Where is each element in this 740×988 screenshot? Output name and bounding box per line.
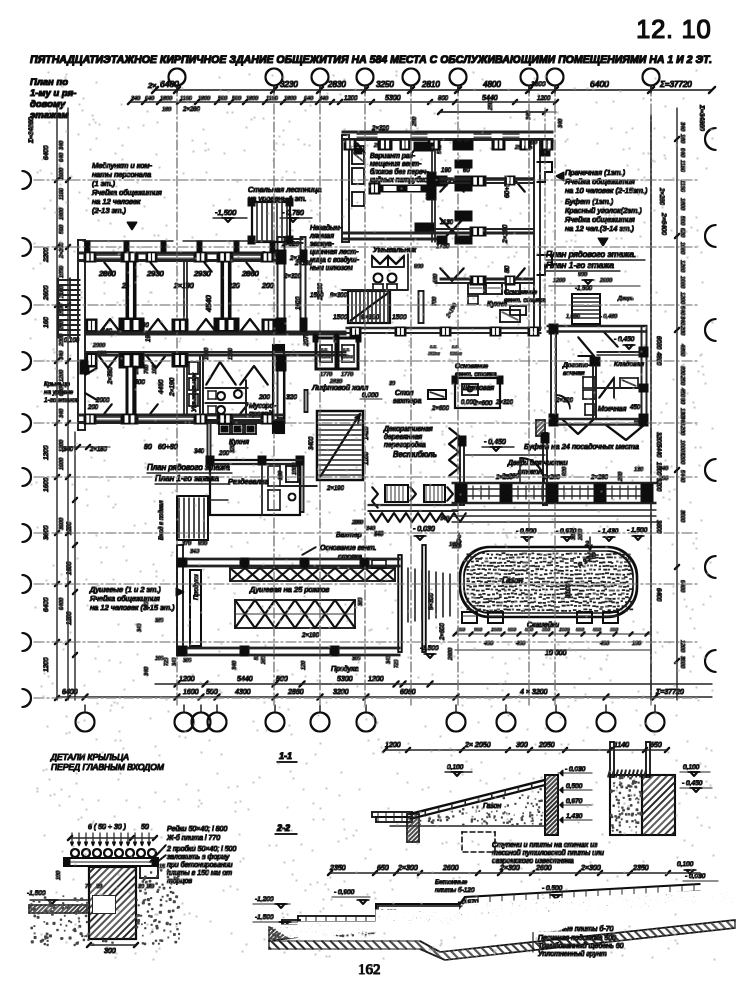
svg-text:2×180: 2×180: [89, 447, 108, 453]
svg-text:1680: 1680: [679, 242, 685, 255]
svg-text:3400: 3400: [309, 436, 315, 450]
svg-text:2×260: 2×260: [658, 187, 664, 206]
svg-text:Ступени и плиты на стенах из: Ступени и плиты на стенах из: [492, 842, 598, 849]
svg-text:900: 900: [474, 627, 482, 633]
svg-text:-1,500: -1,500: [255, 914, 274, 921]
svg-text:60+80: 60+80: [504, 179, 511, 198]
svg-text:900: 900: [414, 264, 424, 270]
svg-text:1100: 1100: [364, 451, 370, 465]
svg-text:2: 2: [456, 535, 461, 542]
svg-text:Σ=37720: Σ=37720: [655, 689, 684, 696]
svg-text:200: 200: [514, 145, 525, 151]
svg-text:350кг: 350кг: [428, 351, 441, 356]
svg-text:800: 800: [438, 96, 449, 102]
svg-text:800: 800: [679, 366, 685, 376]
svg-text:1130: 1130: [440, 220, 454, 226]
svg-text:2×190: 2×190: [502, 224, 509, 244]
svg-text:2860: 2860: [287, 689, 304, 696]
svg-text:2×190: 2×190: [173, 283, 194, 290]
svg-text:5300: 5300: [337, 676, 353, 683]
svg-text:Рейки 50×40; l 800: Рейки 50×40; l 800: [167, 825, 227, 833]
svg-text:2×600: 2×600: [431, 406, 450, 412]
svg-text:на 12 человек (3-15 эт.): на 12 человек (3-15 эт.): [90, 603, 175, 612]
svg-text:3250: 3250: [376, 80, 394, 89]
svg-text:1200: 1200: [553, 278, 566, 284]
svg-text:120: 120: [301, 660, 307, 670]
svg-text:4800: 4800: [483, 80, 501, 89]
svg-text:- 1,430: - 1,430: [598, 528, 619, 535]
svg-text:300: 300: [352, 656, 361, 662]
svg-text:560: 560: [218, 96, 228, 102]
svg-text:2×320: 2×320: [371, 126, 390, 132]
svg-text:1-му и ря-: 1-му и ря-: [30, 88, 76, 99]
svg-text:650: 650: [377, 865, 389, 872]
svg-text:200: 200: [373, 143, 384, 149]
svg-text:2×190: 2×190: [326, 486, 345, 492]
svg-text:Прачечная (1эт.): Прачечная (1эт.): [565, 168, 626, 177]
svg-text:Газон: Газон: [483, 803, 501, 810]
svg-text:180: 180: [433, 273, 439, 283]
svg-text:90: 90: [634, 420, 641, 426]
svg-text:600: 600: [562, 466, 568, 476]
svg-text:200: 200: [527, 140, 538, 146]
svg-text:700: 700: [432, 296, 438, 306]
svg-text:280: 280: [261, 655, 267, 665]
svg-text:340: 340: [63, 447, 74, 453]
svg-text:300: 300: [516, 742, 528, 749]
svg-text:640: 640: [679, 148, 685, 158]
svg-text:вахтера: вахтера: [393, 398, 422, 405]
svg-text:4860: 4860: [655, 352, 661, 366]
svg-text:перегородка: перегородка: [384, 441, 426, 449]
svg-text:блоков без переч-: блоков без переч-: [370, 168, 429, 176]
svg-text:1770: 1770: [341, 372, 354, 378]
svg-text:ционная лест-: ционная лест-: [310, 249, 359, 256]
svg-text:800: 800: [276, 676, 288, 683]
svg-text:2930: 2930: [146, 269, 165, 278]
svg-text:- 0,500: - 0,500: [542, 885, 563, 892]
svg-text:9×300: 9×300: [429, 592, 435, 610]
svg-text:340: 340: [440, 516, 450, 522]
svg-text:2070: 2070: [304, 332, 310, 347]
svg-text:- 0,500: - 0,500: [516, 528, 537, 535]
svg-text:340: 340: [679, 416, 685, 426]
svg-text:2×260: 2×260: [590, 475, 609, 481]
svg-text:Бетонные: Бетонные: [435, 879, 468, 886]
svg-text:160: 160: [43, 317, 50, 328]
svg-text:2800: 2800: [448, 647, 454, 661]
svg-text:340: 340: [544, 140, 554, 146]
svg-text:торцов: торцов: [167, 878, 192, 885]
svg-text:1800: 1800: [160, 96, 173, 102]
svg-text:400: 400: [516, 641, 526, 647]
svg-text:80: 80: [144, 444, 152, 451]
svg-text:300: 300: [571, 531, 577, 540]
svg-text:Ячейка общежития: Ячейка общежития: [89, 594, 160, 603]
svg-text:наты персонала: наты персонала: [92, 170, 151, 179]
svg-text:5300: 5300: [385, 95, 401, 102]
svg-text:162: 162: [358, 962, 381, 978]
svg-text:Душевая на 25 рожков: Душевая на 25 рожков: [249, 585, 329, 594]
svg-text:1200: 1200: [43, 445, 50, 460]
svg-text:- 0,030: - 0,030: [565, 766, 586, 773]
svg-text:2050: 2050: [578, 529, 584, 541]
svg-text:720: 720: [164, 657, 170, 666]
svg-text:5440: 5440: [655, 444, 661, 458]
svg-text:2600: 2600: [599, 278, 613, 284]
svg-text:1200: 1200: [679, 640, 685, 653]
svg-text:- 1,500: - 1,500: [627, 527, 648, 534]
svg-text:4 × 3200: 4 × 3200: [520, 689, 548, 696]
svg-text:100: 100: [632, 641, 642, 647]
svg-text:4460: 4460: [158, 379, 165, 394]
svg-text:30: 30: [96, 884, 103, 890]
svg-text:180: 180: [162, 107, 172, 113]
svg-text:2×190: 2×190: [301, 633, 320, 639]
svg-text:300: 300: [542, 627, 550, 633]
svg-text:70: 70: [148, 884, 155, 890]
svg-text:250: 250: [679, 375, 685, 386]
svg-text:- 0,480: - 0,480: [600, 314, 618, 320]
svg-text:80: 80: [504, 265, 511, 273]
svg-text:1000: 1000: [491, 627, 502, 633]
svg-text:10 000: 10 000: [545, 650, 567, 657]
svg-text:540: 540: [679, 306, 685, 316]
svg-text:220: 220: [121, 283, 134, 290]
svg-text:370: 370: [182, 541, 192, 547]
svg-text:на 12 чел.(3-14 эт.): на 12 чел.(3-14 эт.): [565, 224, 634, 233]
svg-text:1200: 1200: [679, 292, 685, 305]
svg-text:60: 60: [142, 323, 149, 329]
svg-text:вент. стояка: вент. стояка: [455, 371, 497, 378]
svg-text:Дверь: Дверь: [617, 296, 634, 302]
svg-text:340: 340: [679, 316, 685, 326]
svg-text:ляемая: ляемая: [309, 233, 334, 240]
svg-text:деревянная: деревянная: [384, 433, 422, 441]
svg-text:80: 80: [254, 654, 260, 660]
svg-text:900: 900: [578, 272, 588, 278]
svg-text:-1,200: -1,200: [255, 896, 274, 903]
svg-text:- 0,030: - 0,030: [685, 873, 706, 880]
svg-text:2×190: 2×190: [169, 377, 176, 397]
svg-text:(2-13 эт.): (2-13 эт.): [92, 206, 127, 215]
svg-text:2830: 2830: [327, 80, 346, 89]
svg-text:800: 800: [525, 627, 533, 633]
svg-text:6400: 6400: [590, 79, 609, 89]
svg-text:0,100: 0,100: [677, 861, 694, 868]
svg-text:саэремского известняка: саэремского известняка: [492, 858, 574, 865]
svg-text:-1,500: -1,500: [575, 286, 593, 292]
svg-text:1800: 1800: [284, 96, 297, 102]
svg-text:4300: 4300: [235, 689, 251, 696]
svg-text:300: 300: [610, 627, 618, 633]
svg-text:1500: 1500: [333, 314, 348, 321]
svg-text:1600: 1600: [43, 477, 50, 492]
svg-text:2×260: 2×260: [501, 474, 520, 480]
svg-text:ПЕРЕД ГЛАВНЫМ ВХОДОМ: ПЕРЕД ГЛАВНЫМ ВХОДОМ: [51, 762, 165, 772]
svg-text:450: 450: [630, 405, 641, 411]
svg-text:1200: 1200: [43, 657, 50, 672]
svg-text:3200: 3200: [333, 689, 349, 696]
svg-text:-1,500: -1,500: [27, 890, 46, 897]
svg-text:Догото-: Догото-: [562, 362, 591, 369]
svg-text:Σ=37720: Σ=37720: [659, 80, 692, 89]
svg-text:3600: 3600: [679, 510, 685, 523]
svg-text:2×320: 2×320: [281, 242, 300, 248]
svg-text:-2,700: -2,700: [196, 477, 214, 483]
svg-text:340: 340: [194, 449, 205, 455]
svg-text:1600: 1600: [59, 457, 65, 470]
svg-text:0,000: 0,000: [362, 392, 379, 399]
svg-text:- 0,450: - 0,450: [682, 780, 703, 787]
svg-text:3200: 3200: [679, 452, 685, 465]
svg-text:9×300: 9×300: [330, 293, 348, 299]
svg-text:50: 50: [141, 824, 149, 831]
svg-text:220: 220: [227, 283, 240, 290]
svg-text:6400: 6400: [59, 597, 65, 610]
svg-text:0,100: 0,100: [64, 338, 80, 344]
svg-text:эвакуа-: эвакуа-: [310, 241, 335, 248]
svg-text:640: 640: [59, 152, 65, 162]
svg-text:1600: 1600: [531, 81, 546, 88]
svg-text:2×600: 2×600: [440, 622, 446, 641]
svg-text:на уровне: на уровне: [44, 389, 74, 396]
svg-text:Вариант раз-: Вариант раз-: [370, 153, 416, 160]
svg-text:340: 340: [59, 140, 65, 150]
svg-text:2×260: 2×260: [59, 242, 65, 259]
svg-text:6060: 6060: [400, 689, 416, 696]
svg-text:1800: 1800: [59, 207, 65, 220]
svg-text:200: 200: [679, 425, 685, 436]
svg-text:380: 380: [155, 618, 164, 624]
svg-text:Продуха: Продуха: [331, 665, 359, 673]
svg-text:1770: 1770: [320, 372, 333, 378]
svg-text:1800: 1800: [198, 96, 211, 102]
svg-text:200: 200: [658, 476, 669, 482]
svg-text:200: 200: [353, 520, 364, 526]
svg-text:320: 320: [286, 394, 297, 401]
svg-text:2×320: 2×320: [555, 398, 574, 404]
svg-text:2600: 2600: [535, 865, 552, 872]
svg-text:2×190: 2×190: [294, 261, 313, 267]
svg-text:200: 200: [87, 405, 99, 411]
svg-text:2200: 2200: [43, 247, 50, 263]
svg-text:300: 300: [104, 948, 116, 955]
svg-text:1160: 1160: [266, 96, 279, 102]
svg-text:340: 340: [319, 96, 329, 102]
svg-text:250: 250: [488, 100, 494, 111]
svg-text:200: 200: [679, 325, 685, 336]
svg-text:1730: 1730: [436, 244, 450, 250]
svg-text:100: 100: [155, 656, 164, 662]
svg-text:180: 180: [452, 544, 462, 550]
svg-text:1160: 1160: [679, 180, 685, 193]
svg-text:- 0,450: - 0,450: [614, 336, 635, 343]
svg-text:250: 250: [618, 471, 624, 482]
svg-text:500кг: 500кг: [341, 354, 354, 359]
svg-text:1200: 1200: [344, 96, 358, 102]
svg-text:Песчаная подсыпка 500: Песчаная подсыпка 500: [538, 934, 616, 942]
svg-text:6400: 6400: [655, 588, 661, 602]
svg-text:Лифтовой холл: Лифтовой холл: [311, 383, 369, 392]
svg-text:340: 340: [137, 623, 143, 632]
svg-text:200: 200: [261, 283, 274, 290]
svg-text:мещения вент-: мещения вент-: [370, 161, 422, 168]
svg-text:180: 180: [679, 134, 685, 144]
svg-text:2× 2050: 2× 2050: [464, 742, 491, 749]
svg-text:Декоративная: Декоративная: [383, 426, 433, 433]
svg-text:1180: 1180: [679, 160, 685, 173]
svg-text:1130: 1130: [228, 347, 234, 360]
svg-text:- 0,900: - 0,900: [334, 889, 355, 896]
svg-text:Вестибюль: Вестибюль: [393, 450, 437, 459]
svg-text:вент. стояка: вент. стояка: [504, 297, 546, 304]
svg-text:ДЕТАЛИ КРЫЛЬЦА: ДЕТАЛИ КРЫЛЬЦА: [50, 752, 129, 762]
svg-text:12. 10: 12. 10: [636, 14, 711, 44]
svg-text:(1 эт.): (1 эт.): [92, 179, 116, 188]
svg-text:2860: 2860: [98, 269, 117, 278]
svg-text:300: 300: [183, 658, 192, 664]
svg-text:2×320: 2×320: [495, 400, 514, 406]
svg-text:2 пробки 50×40; l 500: 2 пробки 50×40; l 500: [166, 845, 236, 853]
svg-text:1050: 1050: [59, 265, 65, 278]
svg-text:6 ( 50 + 30 ): 6 ( 50 + 30 ): [88, 824, 126, 831]
svg-text:500: 500: [206, 689, 218, 696]
svg-text:1920: 1920: [296, 296, 302, 310]
svg-text:Σ=34860: Σ=34860: [698, 104, 705, 131]
svg-text:1420: 1420: [364, 426, 370, 440]
svg-text:100: 100: [56, 870, 62, 880]
svg-text:90: 90: [679, 398, 685, 405]
svg-text:900: 900: [198, 541, 208, 547]
svg-text:Ячейка общежития: Ячейка общежития: [91, 188, 162, 197]
svg-text:2050: 2050: [538, 742, 555, 749]
svg-text:1000: 1000: [292, 462, 298, 475]
svg-text:60+80: 60+80: [158, 444, 178, 451]
svg-text:3230: 3230: [280, 80, 298, 89]
svg-text:340: 340: [679, 122, 685, 132]
svg-text:на 12 человек: на 12 человек: [92, 197, 141, 206]
svg-text:640: 640: [145, 96, 155, 102]
svg-text:560: 560: [679, 216, 685, 226]
svg-text:1600: 1600: [183, 689, 199, 696]
svg-text:стекол: стекол: [518, 469, 542, 476]
svg-text:при бетонировании: при бетонировании: [167, 861, 233, 869]
svg-text:Буфет на 24 посадочных места: Буфет на 24 посадочных места: [524, 442, 639, 451]
svg-text:плиты б-120: плиты б-120: [435, 886, 475, 894]
svg-text:1160: 1160: [180, 96, 193, 102]
svg-text:1200: 1200: [368, 676, 384, 683]
svg-text:340: 340: [59, 408, 65, 418]
svg-text:довому: довому: [30, 99, 66, 110]
svg-text:15: 15: [159, 864, 166, 870]
svg-text:30: 30: [389, 381, 396, 387]
svg-text:заложить в форму: заложить в форму: [166, 854, 230, 861]
svg-text:2000: 2000: [92, 343, 106, 349]
svg-text:560: 560: [232, 96, 242, 102]
svg-text:Незадым-: Незадым-: [310, 224, 343, 232]
svg-text:Вход в подвал: Вход в подвал: [159, 500, 165, 540]
svg-text:6400: 6400: [43, 597, 50, 612]
svg-text:780: 780: [144, 364, 150, 374]
svg-text:1200: 1200: [67, 611, 73, 625]
svg-text:г.п.: г.п.: [343, 347, 350, 352]
svg-text:200: 200: [218, 451, 230, 457]
svg-text:200: 200: [426, 190, 432, 201]
svg-text:Вахтер: Вахтер: [336, 532, 362, 539]
svg-text:500кг: 500кг: [450, 351, 463, 356]
svg-text:2600: 2600: [442, 865, 459, 872]
svg-text:ным шлюзом: ным шлюзом: [310, 265, 353, 272]
svg-text:1680: 1680: [679, 276, 685, 289]
svg-text:250: 250: [96, 351, 107, 357]
svg-text:340: 340: [144, 666, 150, 676]
svg-text:2×320: 2×320: [283, 274, 302, 280]
svg-text:4860: 4860: [679, 344, 685, 357]
svg-text:г.п.: г.п.: [430, 344, 437, 349]
svg-text:6400: 6400: [160, 79, 179, 89]
svg-text:1600: 1600: [59, 167, 65, 180]
svg-text:2×320: 2×320: [261, 252, 280, 258]
svg-text:Умывальник: Умывальник: [372, 245, 417, 254]
svg-text:1200: 1200: [537, 96, 551, 102]
svg-text:1600: 1600: [67, 561, 73, 575]
svg-text:- 0,030: - 0,030: [413, 526, 435, 533]
svg-text:кидных патрубков: кидных патрубков: [370, 176, 431, 184]
svg-text:1080: 1080: [204, 347, 210, 360]
svg-text:ПЯТНАДЦАТИЭТАЖНОЕ КИРПИЧНОЕ: ПЯТНАДЦАТИЭТАЖНОЕ КИРПИЧНОЕ ЗДАНИЕ ОБЩЕЖ…: [30, 54, 712, 66]
svg-text:2×260: 2×260: [182, 107, 201, 113]
svg-text:0,000: 0,000: [461, 400, 477, 406]
svg-text:2×: 2×: [147, 81, 157, 90]
svg-text:Продухи: Продухи: [192, 574, 200, 600]
svg-text:Ж-б плита l 770: Ж-б плита l 770: [166, 834, 220, 842]
svg-text:400: 400: [484, 641, 494, 647]
svg-text:-1,500: -1,500: [215, 208, 237, 217]
svg-text:Раздевалка: Раздевалка: [228, 477, 269, 486]
svg-text:0,970: 0,970: [566, 798, 583, 805]
svg-text:1-1: 1-1: [279, 751, 292, 761]
svg-text:Основание: Основание: [455, 363, 489, 370]
svg-text:вочная: вочная: [563, 370, 585, 377]
svg-text:Моечная: Моечная: [598, 406, 627, 413]
svg-text:340: 340: [526, 110, 532, 120]
svg-text:Уплотненный грунт: Уплотненный грунт: [537, 950, 607, 958]
svg-text:План 1-го этажа: План 1-го этажа: [546, 260, 614, 270]
svg-text:тесаной путиловской плиты или: тесаной путиловской плиты или: [492, 849, 604, 857]
svg-text:450: 450: [679, 388, 685, 398]
svg-text:6060: 6060: [655, 336, 661, 350]
svg-text:340: 340: [558, 118, 564, 128]
svg-text:4100: 4100: [565, 583, 572, 598]
svg-text:2810: 2810: [421, 80, 440, 89]
svg-text:2×380: 2×380: [108, 366, 114, 385]
svg-text:Газон: Газон: [502, 576, 523, 585]
svg-text:650: 650: [650, 742, 662, 749]
svg-text:г.п.: г.п.: [321, 347, 328, 352]
svg-text:340: 340: [190, 549, 200, 555]
svg-text:2×260: 2×260: [542, 475, 561, 481]
svg-text:560: 560: [59, 224, 65, 234]
svg-text:340: 340: [232, 660, 238, 670]
svg-text:2-2: 2-2: [276, 823, 290, 833]
svg-text:800: 800: [508, 627, 516, 633]
svg-text:250: 250: [412, 116, 418, 127]
svg-text:1200: 1200: [67, 521, 73, 535]
svg-text:2600: 2600: [43, 285, 50, 301]
svg-text:3600: 3600: [679, 656, 685, 669]
svg-text:Трамбованный щебень 60: Трамбованный щебень 60: [538, 942, 624, 950]
